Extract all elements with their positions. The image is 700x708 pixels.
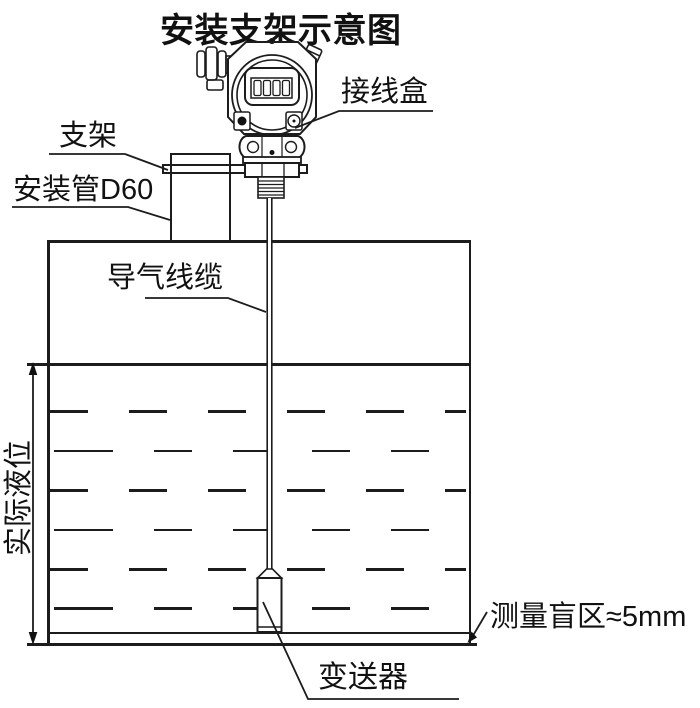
blind-zone-arrow — [468, 612, 488, 643]
transmitter-label: 变送器 — [318, 662, 408, 694]
bracket-label: 支架 — [59, 121, 117, 151]
actual-level-label: 实际液位 — [4, 432, 36, 564]
transmitter-probe — [258, 569, 282, 632]
air-cable-leader-line — [145, 298, 266, 312]
mounting-pipe-leader-line — [12, 207, 170, 220]
bracket-leader-line — [49, 154, 168, 170]
process-neck — [239, 136, 304, 159]
transmitter-head-drawing — [197, 39, 322, 199]
blind-zone-label: 测量盲区≈5mm — [490, 602, 686, 632]
junction-box-label: 接线盒 — [341, 77, 428, 107]
mounting-pipe-label: 安装管D60 — [13, 175, 153, 205]
left-bolt-icon — [238, 117, 247, 126]
hex-nut — [245, 163, 299, 177]
air-cable-label: 导气线缆 — [107, 263, 223, 293]
cable-gland-icon — [197, 47, 232, 90]
air-cable-line — [267, 198, 273, 570]
display-window — [245, 68, 299, 105]
threaded-stub — [258, 177, 284, 198]
installation-bracket-diagram: 安装支架示意图 — [0, 0, 700, 708]
